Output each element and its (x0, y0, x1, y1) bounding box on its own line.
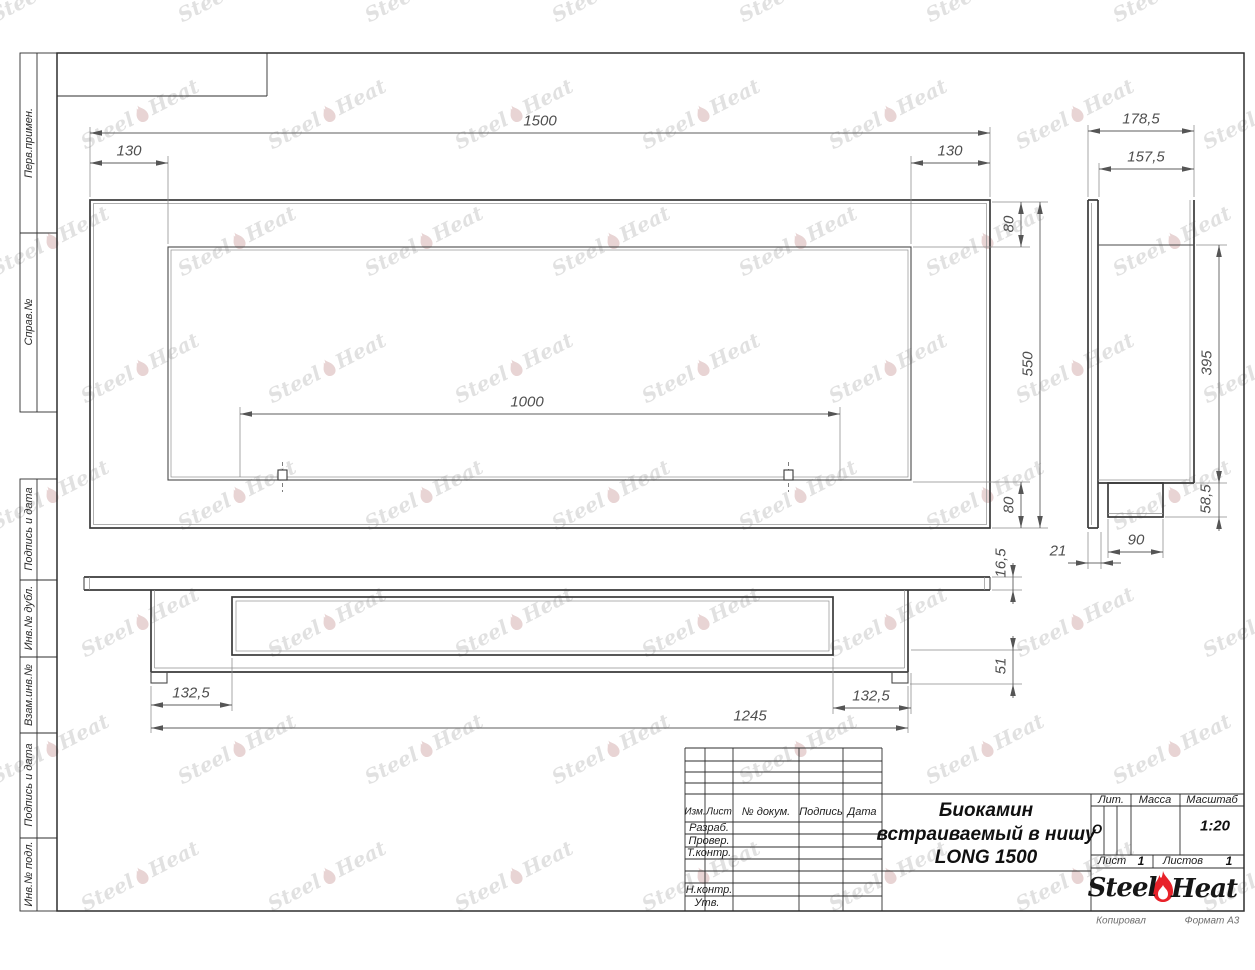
doc-title-line-3: LONG 1500 (935, 847, 1037, 869)
side-label-vzam-inv: Взам.инв.№ (23, 664, 35, 726)
watermark: SteelHeat (1109, 0, 1235, 27)
tb-sheets-label: Листов (1163, 855, 1203, 867)
watermark: SteelHeat (825, 582, 951, 662)
side-label-perv-primen: Перв.примен. (23, 108, 35, 178)
dim-front-right-inset: 130 (937, 143, 962, 160)
watermark: SteelHeat (548, 709, 674, 789)
dim-bottom-flange-thickness: 16,5 (993, 548, 1010, 577)
watermark: SteelHeat (922, 0, 1048, 27)
watermark: SteelHeat (77, 328, 203, 408)
watermark: SteelHeat (0, 709, 113, 789)
dim-side-flange-depth: 21 (1050, 543, 1067, 560)
watermark: SteelHeat (0, 0, 113, 27)
tb-row-razrab: Разраб. (689, 822, 729, 834)
watermark: SteelHeat (638, 582, 764, 662)
dim-bottom-body-width: 1245 (733, 708, 766, 725)
dim-front-left-inset: 130 (116, 143, 141, 160)
watermark: SteelHeat (1012, 74, 1138, 154)
watermark: SteelHeat (174, 201, 300, 281)
watermark: SteelHeat (451, 836, 577, 916)
watermark: SteelHeat (735, 0, 861, 27)
side-label-podpis-data-1: Подпись и дата (23, 487, 35, 570)
footer-copied: Копировал (1096, 916, 1146, 927)
watermark: SteelHeat (361, 709, 487, 789)
dim-side-body-depth: 157,5 (1127, 149, 1165, 166)
tb-scale-label: Масштаб (1186, 794, 1237, 806)
tb-col-data: Дата (847, 806, 876, 818)
watermark: SteelHeat (638, 328, 764, 408)
tb-col-ndocum: № докум. (742, 806, 790, 818)
side-label-inv-podl: Инв.№ подл. (23, 841, 35, 906)
dim-front-top-frame: 80 (1001, 216, 1018, 233)
drawing-sheet: SteelHeatSteelHeatSteelHeatSteelHeatStee… (0, 0, 1255, 970)
watermark: SteelHeat (548, 0, 674, 27)
dim-front-total-width: 1500 (523, 113, 556, 130)
watermark: SteelHeat (264, 582, 390, 662)
watermark: SteelHeat (1109, 709, 1235, 789)
dim-side-total-depth: 178,5 (1122, 111, 1160, 128)
dim-front-height: 550 (1020, 351, 1037, 376)
watermark: SteelHeat (264, 328, 390, 408)
watermark: SteelHeat (0, 455, 113, 535)
tb-col-list: Лист (706, 807, 732, 818)
watermark: SteelHeat (1199, 582, 1255, 662)
dim-bottom-tray-depth: 51 (993, 658, 1010, 675)
watermark: SteelHeat (174, 455, 300, 535)
watermark: SteelHeat (1109, 455, 1235, 535)
watermark: SteelHeat (548, 201, 674, 281)
side-label-sprav-no: Справ.№ (23, 299, 35, 346)
watermark: SteelHeat (264, 74, 390, 154)
watermark: SteelHeat (77, 836, 203, 916)
watermark: SteelHeat (922, 201, 1048, 281)
dim-front-bottom-frame: 80 (1001, 497, 1018, 514)
watermark: SteelHeat (264, 836, 390, 916)
tb-lit-value: О (1092, 822, 1102, 837)
watermark: SteelHeat (361, 0, 487, 27)
watermark: SteelHeat (451, 582, 577, 662)
side-label-inv-dubl: Инв.№ дубл. (23, 586, 35, 651)
tb-scale-value: 1:20 (1200, 818, 1230, 835)
watermark: SteelHeat (825, 328, 951, 408)
side-label-podpis-data-2: Подпись и дата (23, 743, 35, 826)
dim-bottom-left-offset: 132,5 (172, 685, 210, 702)
doc-title-line-2: встраиваемый в нишу (876, 824, 1095, 846)
tb-sheet-label: Лист (1098, 855, 1126, 867)
tb-row-tkontr: Т.контр. (687, 847, 731, 859)
tb-lit-label: Лит. (1098, 794, 1124, 806)
watermark: SteelHeat (0, 201, 113, 281)
watermark: SteelHeat (77, 582, 203, 662)
footer-format: Формат А3 (1185, 916, 1240, 927)
watermark: SteelHeat (548, 455, 674, 535)
logo-steel: Steel (1088, 873, 1157, 903)
watermark: SteelHeat (922, 709, 1048, 789)
watermark: SteelHeat (825, 836, 951, 916)
watermark: SteelHeat (922, 455, 1048, 535)
dim-side-niche-height: 395 (1199, 350, 1216, 375)
dim-side-bottom-box-height: 58,5 (1198, 484, 1215, 513)
watermark: SteelHeat (1199, 74, 1255, 154)
watermark: SteelHeat (638, 74, 764, 154)
watermark: SteelHeat (361, 201, 487, 281)
watermark: SteelHeat (1109, 201, 1235, 281)
dim-front-burner-span: 1000 (510, 394, 543, 411)
watermark: SteelHeat (451, 74, 577, 154)
doc-title-line-1: Биокамин (939, 800, 1033, 822)
tb-sheet-value: 1 (1138, 854, 1145, 868)
watermark: SteelHeat (735, 455, 861, 535)
tb-sheets-value: 1 (1226, 854, 1233, 868)
watermark: SteelHeat (735, 201, 861, 281)
watermark: SteelHeat (174, 709, 300, 789)
watermark: SteelHeat (825, 74, 951, 154)
dim-side-bottom-box-width: 90 (1128, 532, 1145, 549)
tb-col-izm: Изм. (684, 807, 705, 818)
dim-bottom-right-offset: 132,5 (852, 688, 890, 705)
tb-row-utv: Утв. (695, 897, 720, 909)
tb-row-prover: Провер. (689, 835, 730, 847)
watermark: SteelHeat (1012, 582, 1138, 662)
logo-heat: Heat (1171, 874, 1237, 904)
tb-mass-label: Масса (1139, 794, 1172, 806)
watermark: SteelHeat (174, 0, 300, 27)
tb-row-nkontr: Н.контр. (686, 884, 733, 896)
watermark: SteelHeat (361, 455, 487, 535)
tb-col-podpis: Подпись (799, 806, 843, 818)
